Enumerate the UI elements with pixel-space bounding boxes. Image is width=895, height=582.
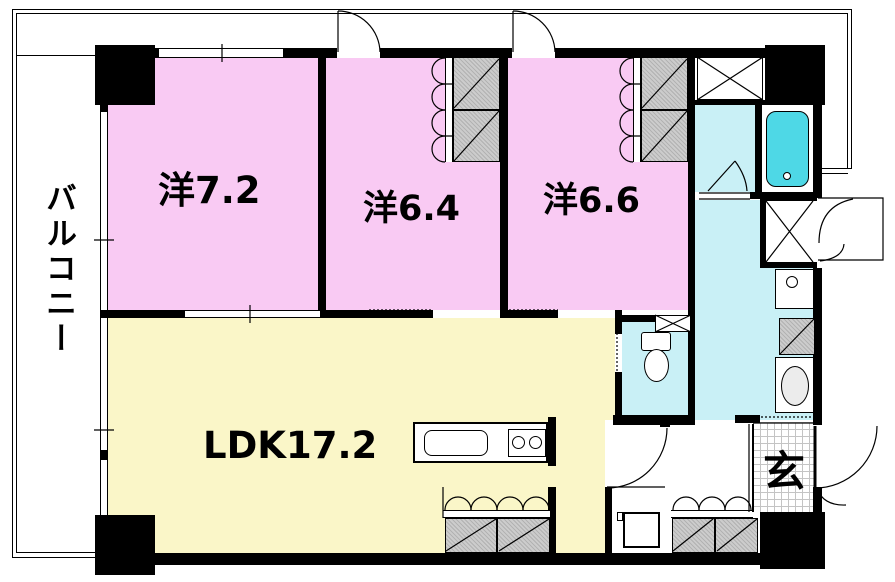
balcony-rail-line xyxy=(16,55,96,56)
window xyxy=(155,48,287,58)
trunk-room xyxy=(766,201,813,262)
storage-box-icon xyxy=(655,315,691,332)
wall-segment xyxy=(613,415,695,425)
wall-segment xyxy=(283,48,287,58)
western3-label: 洋6.6 xyxy=(543,172,640,223)
stove-burner-icon xyxy=(529,436,542,449)
floor-plan: バルコニー 洋7.2 洋6.4 洋6.6 LDK17.2 玄 xyxy=(0,0,895,582)
room-bathroom xyxy=(695,105,757,192)
boundary-line xyxy=(12,9,852,10)
storage-box-icon xyxy=(697,57,763,100)
balcony-label: バルコニー xyxy=(36,182,81,357)
wall-segment xyxy=(813,487,822,512)
boundary-line xyxy=(12,9,13,558)
pillar xyxy=(95,515,155,575)
boundary-line xyxy=(16,13,848,14)
closet-western-6-6 xyxy=(641,57,688,110)
wall-segment xyxy=(100,103,108,112)
closet-door-track xyxy=(671,510,753,518)
sliding-door xyxy=(185,310,320,318)
room-washroom-upper xyxy=(695,200,760,267)
wall-segment xyxy=(813,105,822,198)
wall-segment xyxy=(755,103,762,198)
folding-door-icon xyxy=(673,497,751,510)
wall-segment xyxy=(155,48,159,58)
pillar xyxy=(760,512,825,569)
washbasin-faucet-icon xyxy=(786,276,798,288)
toilet-bowl-icon xyxy=(781,366,809,406)
kitchen-sink-icon xyxy=(424,430,488,456)
wall-segment xyxy=(615,310,622,334)
wall-segment xyxy=(605,487,612,553)
closet-western-6-4 xyxy=(453,110,500,162)
western2-label: 洋6.4 xyxy=(363,180,460,231)
toilet-bowl-icon xyxy=(644,349,669,382)
wall-segment xyxy=(287,48,337,58)
wall-segment xyxy=(548,417,556,466)
boundary-line xyxy=(822,168,852,169)
trunk-door-arc xyxy=(818,198,883,261)
closet-hallway xyxy=(715,518,758,553)
boundary-line xyxy=(847,13,848,169)
ldk-label: LDK17.2 xyxy=(203,424,377,467)
wall-segment xyxy=(100,310,185,318)
boundary-line xyxy=(851,9,852,169)
interior-door-arc xyxy=(607,428,667,488)
wall-segment xyxy=(100,450,108,460)
closet-door-track xyxy=(633,58,641,162)
closet-door-track xyxy=(443,510,550,518)
wall-segment xyxy=(500,310,558,318)
wall-segment xyxy=(688,58,695,420)
closet-ldk xyxy=(497,518,550,553)
room-ldk-upper xyxy=(108,318,615,420)
closet-western-6-6 xyxy=(641,110,688,162)
wall-segment xyxy=(320,310,433,318)
appliance-box xyxy=(623,512,660,548)
closet-door-track xyxy=(445,58,453,162)
washroom-cabinet xyxy=(779,318,815,355)
entrance-door-arc xyxy=(815,426,877,505)
pillar xyxy=(765,45,825,105)
wall-segment xyxy=(735,415,760,423)
exterior-door-arc xyxy=(338,11,555,52)
wall-segment xyxy=(155,553,760,565)
wall-segment xyxy=(622,315,655,322)
closet-hallway xyxy=(672,518,715,553)
entrance-label: 玄 xyxy=(763,438,805,499)
wall-segment xyxy=(760,262,817,268)
balcony-rail-line xyxy=(16,552,96,553)
wall-segment xyxy=(660,418,670,427)
boundary-line xyxy=(16,13,17,553)
appliance-handle-icon xyxy=(617,512,623,521)
pillar xyxy=(95,45,155,105)
stove-burner-icon xyxy=(512,436,525,449)
wall-segment xyxy=(318,58,326,318)
western1-label: 洋7.2 xyxy=(158,160,261,214)
washbasin xyxy=(775,269,814,309)
closet-western-6-4 xyxy=(453,57,500,110)
bathtub-drain-icon xyxy=(783,172,791,180)
closet-ldk xyxy=(445,518,497,553)
boundary-line xyxy=(822,173,848,174)
wall-segment xyxy=(500,58,508,318)
balcony-rail-line xyxy=(12,557,96,558)
